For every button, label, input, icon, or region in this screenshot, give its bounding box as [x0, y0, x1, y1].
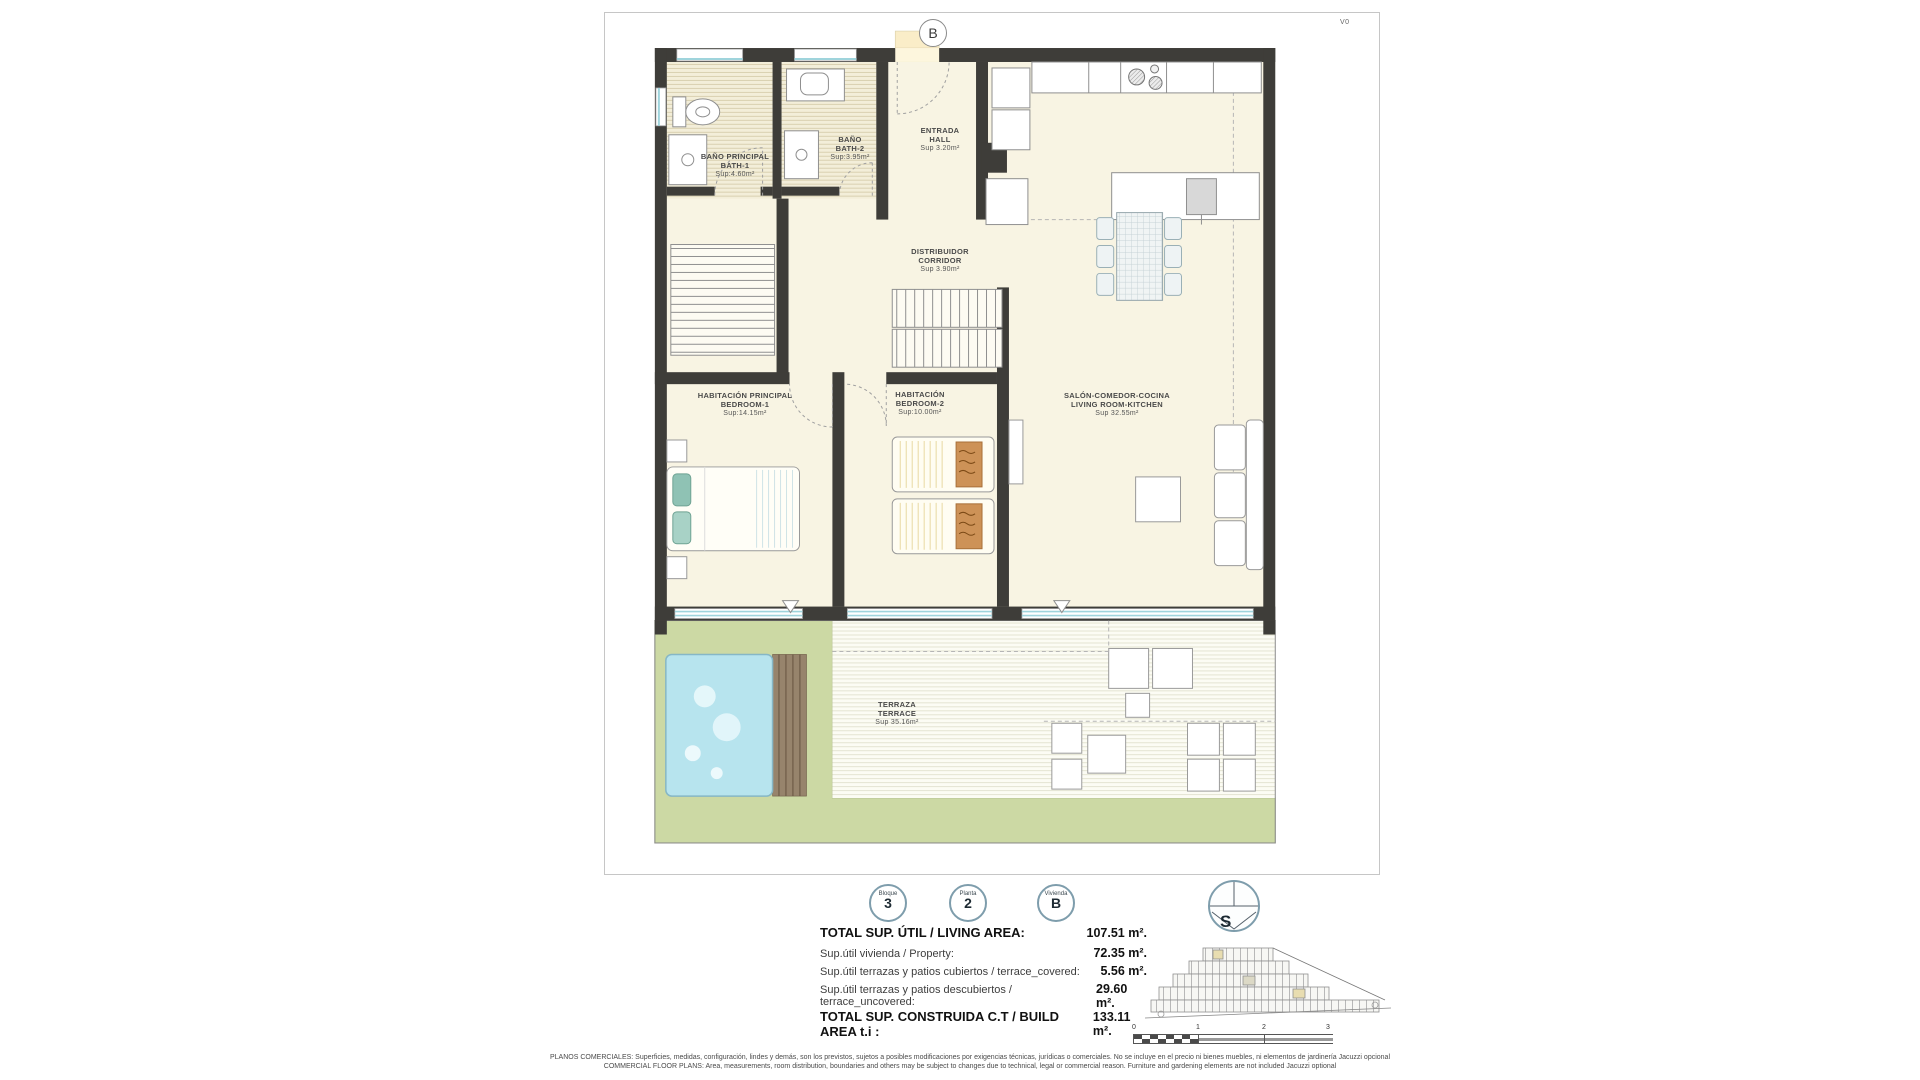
room-label-hall: ENTRADA HALL Sup 3.20m²: [880, 126, 1000, 153]
scale-tick-0: 0: [1130, 1024, 1138, 1031]
compass-letter: S: [1220, 912, 1231, 931]
corridor-wardrobe-2: [892, 329, 1002, 367]
scale-tick-3: 3: [1324, 1024, 1332, 1031]
summary-row-terrace-covered: Sup.útil terrazas y patios cubiertos / t…: [820, 964, 1147, 982]
sheet-marker-circle: B: [919, 19, 947, 47]
tv-unit: [1009, 420, 1023, 484]
scale-tick-2: 2: [1260, 1024, 1268, 1031]
scale-tick-1: 1: [1194, 1024, 1202, 1031]
room-label-living: SALÓN-COMEDOR-COCINA LIVING ROOM-KITCHEN…: [1047, 391, 1187, 418]
summary-row-terrace-uncovered: Sup.útil terrazas y patios descubiertos …: [820, 982, 1147, 1000]
sheet-marker-letter: B: [928, 25, 937, 41]
page-canvas: B V0 BAÑO PRINCIPAL BATH-1 Sup:4.60m² BA…: [0, 0, 1920, 1080]
fridge: [992, 68, 1030, 108]
floorplan-sheet: B V0 BAÑO PRINCIPAL BATH-1 Sup:4.60m² BA…: [604, 12, 1380, 875]
area-summary-table: TOTAL SUP. ÚTIL / LIVING AREA: 107.51 m²…: [820, 925, 1147, 1030]
dining-set: [1097, 213, 1182, 301]
swimming-pool: [666, 654, 773, 796]
room-label-bedroom1: HABITACIÓN PRINCIPAL BEDROOM-1 Sup:14.15…: [670, 391, 820, 418]
pool-deck: [773, 654, 807, 796]
building-elevation-illustration: [1143, 942, 1393, 1024]
badge-bloque: Bloque 3: [869, 884, 907, 922]
room-label-bath1: BAÑO PRINCIPAL BATH-1 Sup:4.60m²: [660, 152, 810, 179]
corridor-wardrobe-1: [892, 289, 1002, 327]
sofa: [1214, 420, 1263, 570]
bedroom1-closet: [671, 245, 775, 356]
room-label-corridor: DISTRIBUIDOR CORRIDOR Sup 3.90m²: [880, 247, 1000, 274]
summary-row-total-util: TOTAL SUP. ÚTIL / LIVING AREA: 107.51 m²…: [820, 925, 1147, 946]
badge-vivienda: Vivienda B: [1037, 884, 1075, 922]
disclaimer: PLANOS COMERCIALES: Superficies, medidas…: [480, 1053, 1460, 1071]
disclaimer-line-en: COMMERCIAL FLOOR PLANS: Area, measuremen…: [480, 1062, 1460, 1071]
summary-row-property: Sup.útil vivienda / Property: 72.35 m².: [820, 946, 1147, 964]
room-label-terrace: TERRAZA TERRACE Sup 35.16m²: [837, 700, 957, 727]
compass-icon: S: [1206, 877, 1262, 933]
version-label: V0: [1340, 19, 1350, 26]
disclaimer-line-es: PLANOS COMERCIALES: Superficies, medidas…: [480, 1053, 1460, 1062]
terrace-garden: [655, 621, 1275, 843]
scale-bar: 0 1 2 3: [1133, 1024, 1333, 1046]
badge-planta: Planta 2: [949, 884, 987, 922]
room-label-bedroom2: HABITACIÓN BEDROOM-2 Sup:10.00m²: [860, 390, 980, 417]
summary-row-total-build: TOTAL SUP. CONSTRUIDA C.T / BUILD AREA t…: [820, 1009, 1147, 1030]
coffee-table: [1136, 477, 1181, 522]
scale-bar-body: [1133, 1034, 1333, 1044]
